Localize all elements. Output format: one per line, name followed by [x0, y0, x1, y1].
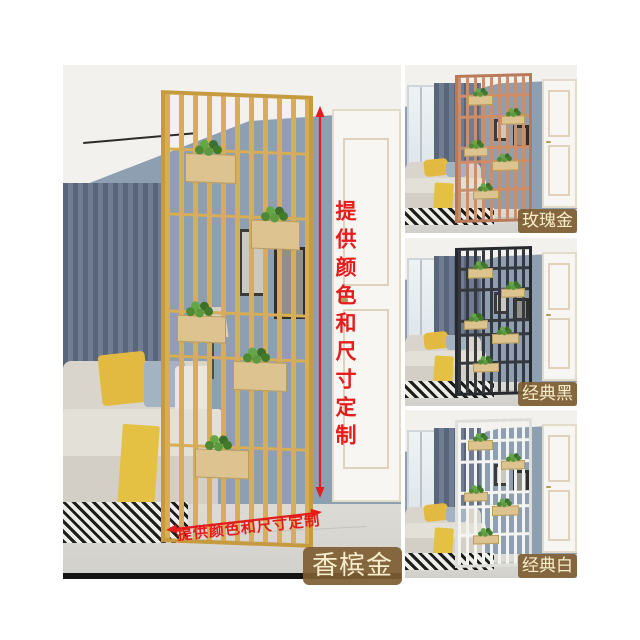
- planter-box: [195, 449, 248, 480]
- planter-box: [501, 115, 525, 125]
- variant-thumb-classic-black[interactable]: 经典黑: [405, 238, 577, 406]
- door-panel: [548, 145, 570, 196]
- planter-box: [464, 493, 488, 502]
- room-scene: [405, 65, 577, 233]
- yellow-throw-blanket: [433, 182, 454, 210]
- main-product-photo-champagne-gold[interactable]: 提供颜色和尺寸定制 提供颜色和尺寸定制 香槟金: [63, 65, 401, 579]
- planter-box: [491, 161, 518, 171]
- planter-box: [185, 153, 235, 184]
- planter-box: [468, 441, 493, 451]
- yellow-pillow: [423, 503, 449, 522]
- vertical-customization-note: 提供颜色和尺寸定制: [329, 200, 359, 452]
- door-handle: [546, 141, 551, 143]
- planter-box: [491, 506, 518, 516]
- yellow-pillow: [423, 158, 449, 177]
- planter-box: [501, 288, 525, 298]
- color-badge-champagne-gold: 香槟金: [303, 547, 402, 585]
- room-divider-screen: [455, 418, 532, 568]
- room-divider-screen: [161, 90, 313, 548]
- door: [542, 79, 577, 208]
- planter-box: [473, 190, 499, 200]
- door-panel: [548, 318, 570, 369]
- planter-box: [177, 315, 226, 344]
- door: [542, 424, 577, 553]
- color-badge-rose-gold: 玫瑰金: [518, 209, 577, 233]
- room-divider-screen: [455, 246, 532, 396]
- product-collage: 提供颜色和尺寸定制 提供颜色和尺寸定制 香槟金: [0, 0, 640, 640]
- yellow-pillow: [423, 331, 449, 350]
- planter-box: [251, 220, 300, 251]
- room-scene: [405, 238, 577, 406]
- variant-thumb-rose-gold[interactable]: 玫瑰金: [405, 65, 577, 233]
- planter-box: [491, 334, 518, 344]
- planter-box: [501, 460, 525, 470]
- planter-box: [468, 269, 493, 279]
- planter-box: [233, 361, 288, 392]
- door-handle: [546, 486, 551, 488]
- yellow-throw-blanket: [433, 527, 454, 555]
- door: [542, 252, 577, 381]
- door-handle: [546, 314, 551, 316]
- room-scene: [405, 410, 577, 578]
- color-badge-classic-black: 经典黑: [518, 382, 577, 406]
- variant-thumb-classic-white[interactable]: 经典白: [405, 410, 577, 578]
- planter-box: [473, 363, 499, 373]
- height-dimension-arrow: [314, 106, 326, 498]
- planter-box: [473, 535, 499, 545]
- yellow-throw-blanket: [118, 424, 161, 509]
- planter-box: [464, 321, 488, 330]
- planter-box: [464, 148, 488, 157]
- yellow-throw-blanket: [433, 355, 454, 383]
- planter-box: [468, 96, 493, 106]
- room-divider-screen: [455, 73, 532, 223]
- door-panel: [548, 490, 570, 541]
- door-panel: [548, 263, 570, 310]
- yellow-pillow: [98, 350, 150, 406]
- color-badge-classic-white: 经典白: [518, 554, 577, 578]
- door-panel: [548, 435, 570, 482]
- door-panel: [548, 90, 570, 137]
